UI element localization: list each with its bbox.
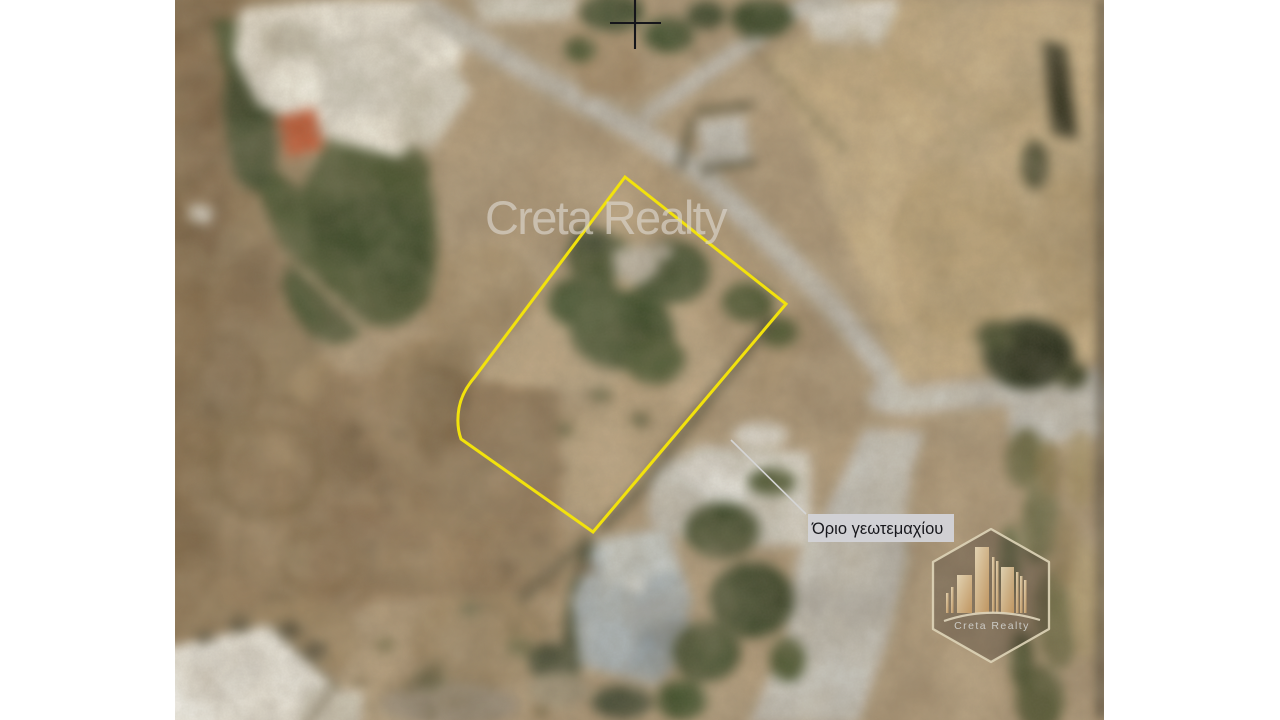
svg-text:Creta Realty: Creta Realty xyxy=(485,191,728,244)
svg-text:Creta Realty: Creta Realty xyxy=(954,620,1030,632)
svg-text:Όριο γεωτεμαχίου: Όριο γεωτεμαχίου xyxy=(811,520,943,538)
